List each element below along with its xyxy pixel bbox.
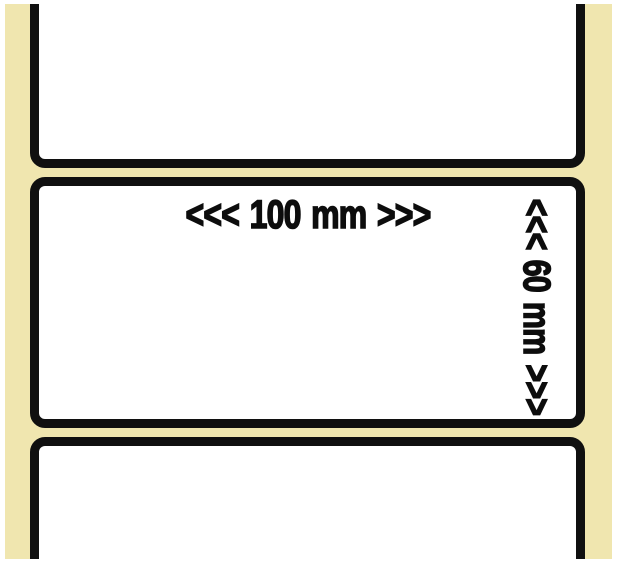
label-blank-top	[30, 4, 585, 168]
width-dimension-text: <<< 100 mm >>>	[185, 195, 430, 235]
label-blank-bottom	[30, 437, 585, 559]
label-roll-product-image: <<< 100 mm >>> <<< 60 mm >>>	[0, 0, 621, 567]
liner-backing: <<< 100 mm >>> <<< 60 mm >>>	[5, 4, 612, 559]
label-dimension: <<< 100 mm >>> <<< 60 mm >>>	[30, 177, 585, 428]
height-dimension-text: <<< 60 mm >>>	[517, 199, 555, 416]
